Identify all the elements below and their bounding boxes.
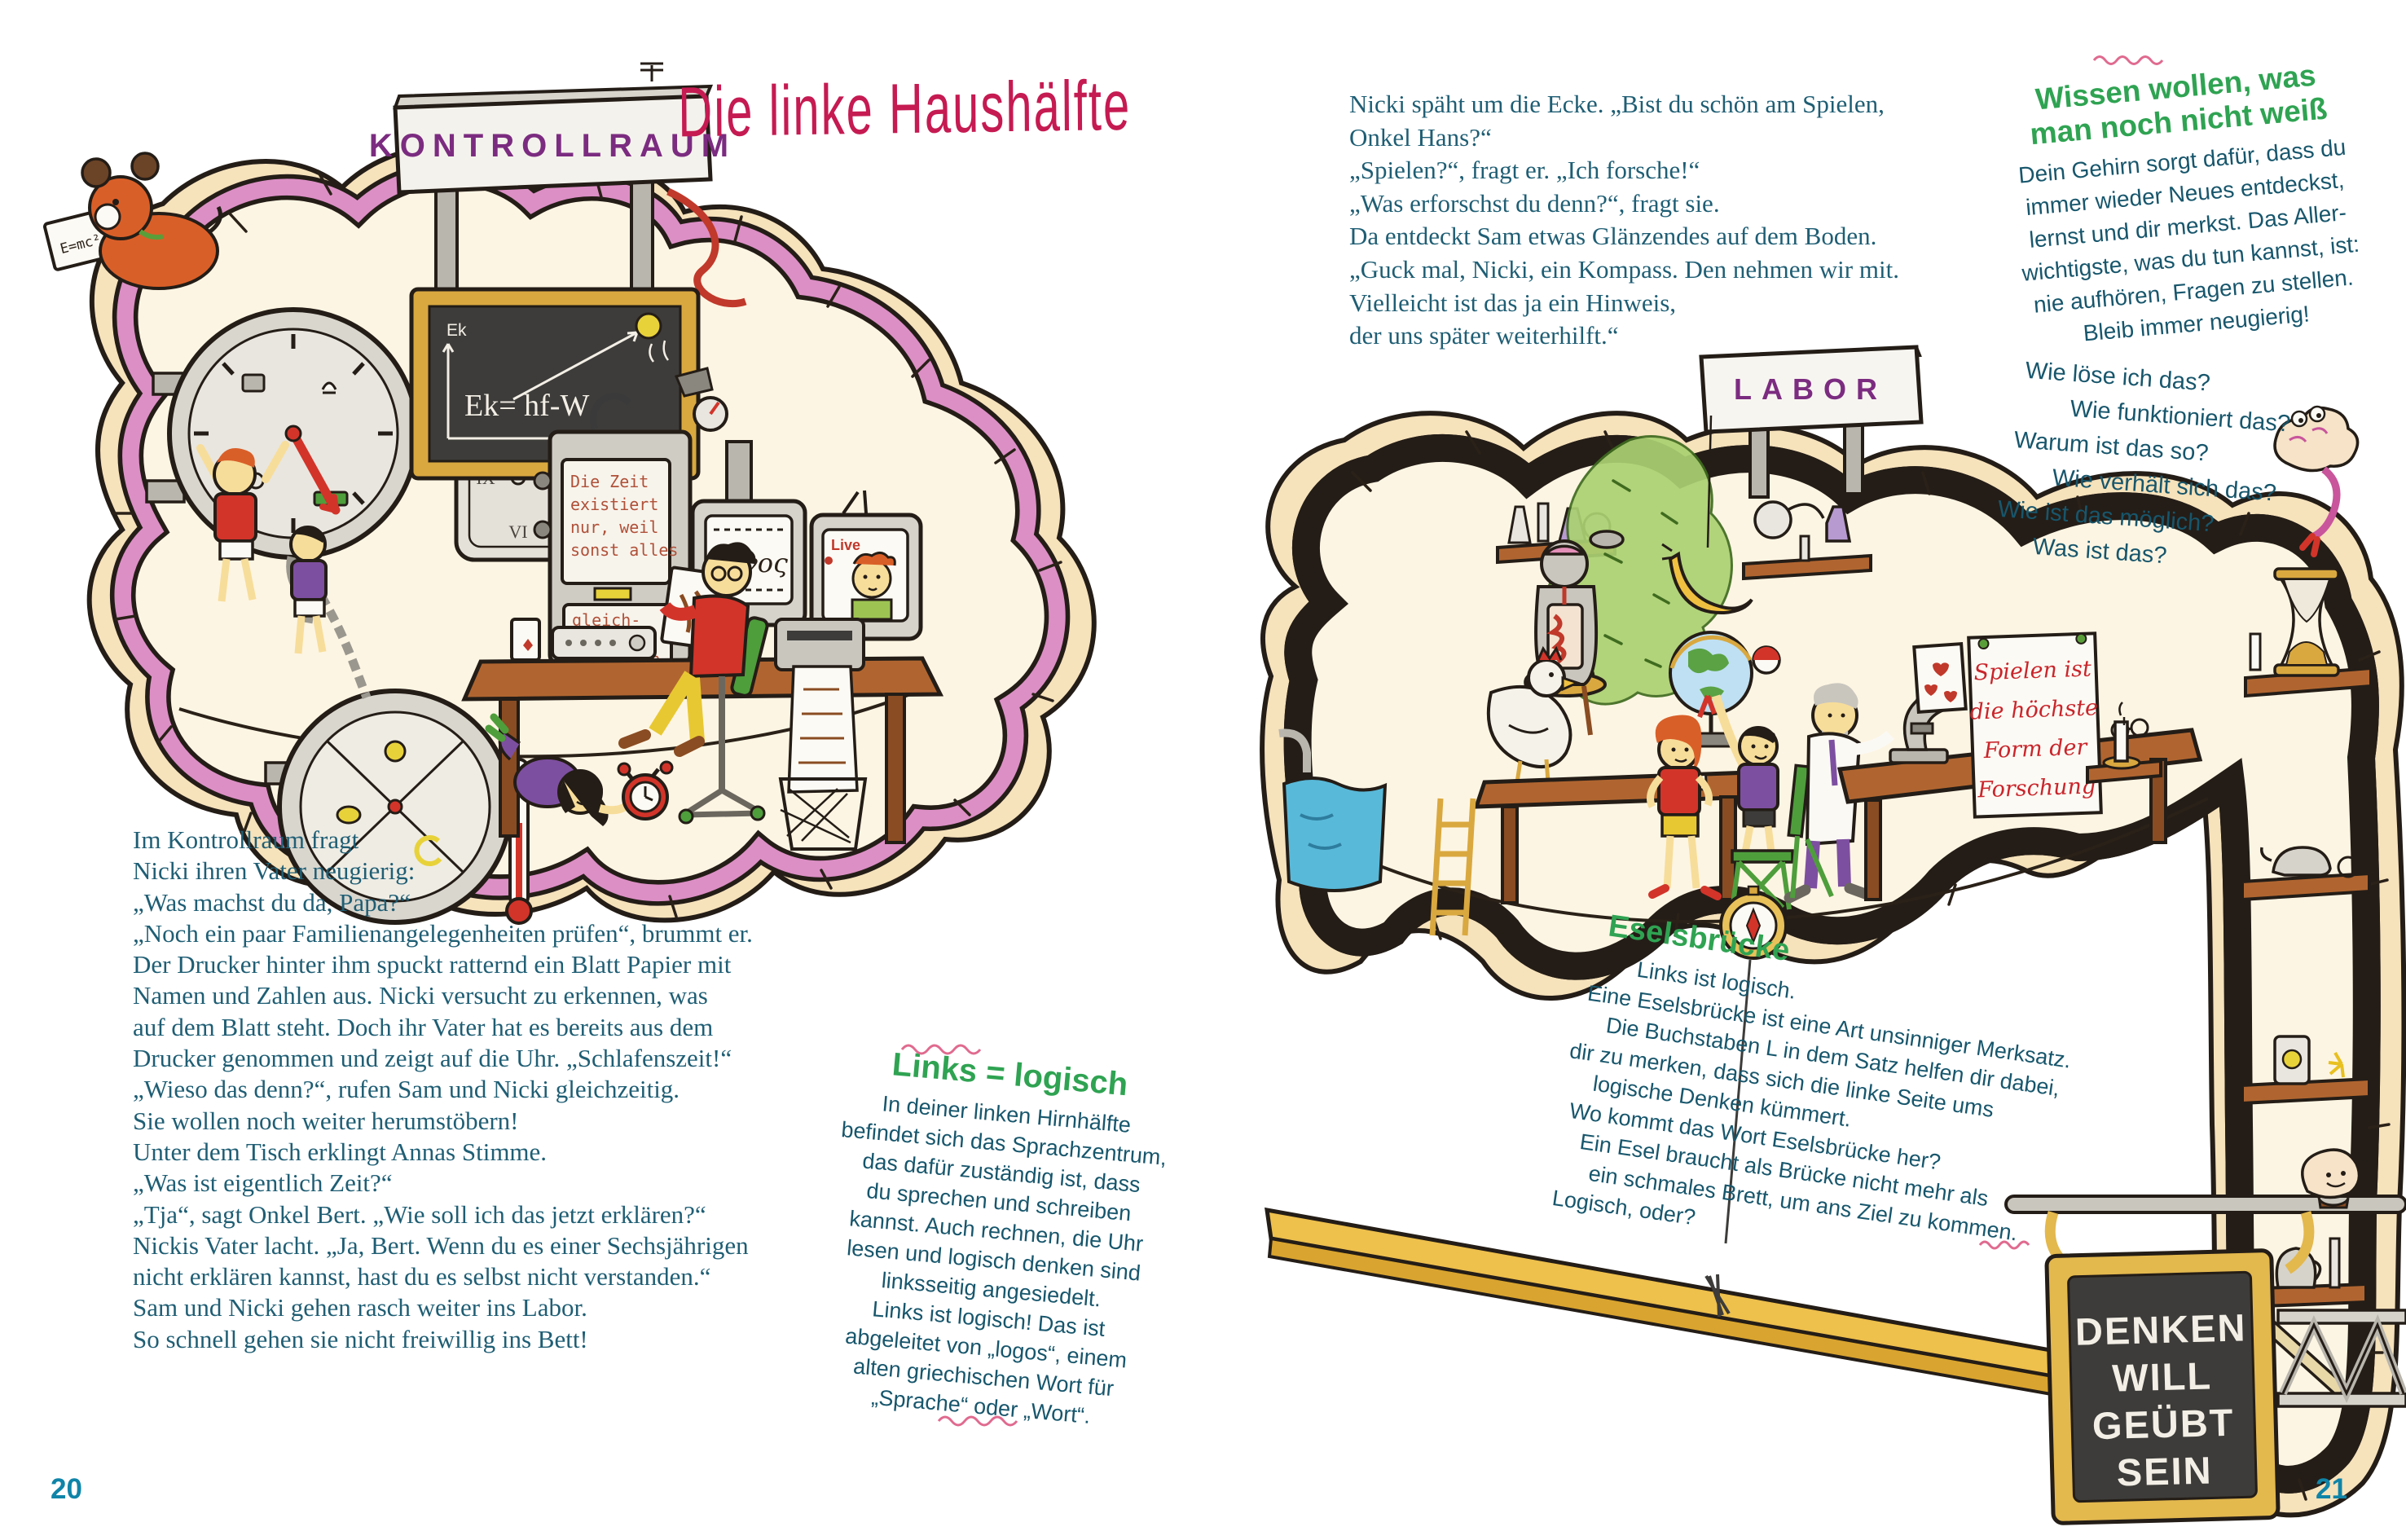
chalkboard-line: SEIN [2116, 1448, 2213, 1494]
machine-screen-line: existiert [570, 495, 658, 514]
story-line: Sam und Nicki gehen rasch weiter ins Lab… [133, 1292, 753, 1323]
story-line: Vielleicht ist das ja ein Hinweis, [1349, 287, 1899, 320]
formula-label: Ek= hf-W [464, 389, 589, 423]
story-line: „Was erforschst du denn?“, fragt sie. [1349, 187, 1899, 221]
story-line: Der Drucker hinter ihm spuckt ratternd e… [133, 949, 753, 980]
story-line: Namen und Zahlen aus. Nicki versucht zu … [133, 980, 753, 1011]
girl-red-shirt [1659, 768, 1700, 815]
infobox-wissen-wollen: Wissen wollen, was man noch nicht weiß D… [1975, 53, 2396, 357]
story-line: Onkel Hans?“ [1349, 121, 1899, 155]
father-shirt [691, 596, 748, 676]
yellow-shorts [1662, 815, 1698, 836]
questions-list: Wie löse ich das? Wie funktioniert das? … [2012, 354, 2294, 582]
story-line: „Was machst du da, Papa?“ [133, 887, 753, 918]
story-line: Im Kontrollraum fragt [133, 825, 753, 856]
squiggle-decoration [1978, 1237, 2035, 1253]
story-line: So schnell gehen sie nicht freiwillig in… [133, 1324, 753, 1355]
candle-icon [2250, 634, 2260, 670]
story-line: Drucker genommen und zeigt auf die Uhr. … [133, 1043, 753, 1074]
story-line: „Tja“, sagt Onkel Bert. „Wie soll ich da… [133, 1199, 753, 1230]
story-line: der uns später weiterhilft.“ [1349, 319, 1899, 353]
test-tube-icon [2330, 1239, 2339, 1287]
infobox-links-logisch: Links = logisch In deiner linken Hirnhäl… [785, 1040, 1206, 1438]
story-text-left: Im Kontrollraum fragt Nicki ihren Vater … [133, 825, 753, 1355]
story-line: Nicki ihren Vater neugierig: [133, 856, 753, 887]
dog-ear [132, 153, 158, 179]
lantern-icon [2275, 1036, 2309, 1084]
story-line: Sie wollen noch weiter herumstöbern! [133, 1106, 753, 1137]
lock-pictogram [243, 375, 264, 391]
pin-icon [2076, 634, 2086, 644]
dog-ear [82, 159, 110, 187]
story-line: „Guck mal, Nicki, ein Kompass. Den nehme… [1349, 253, 1899, 287]
machine-screen-line: nur, weil [570, 517, 658, 537]
story-text-right: Nicki späht um die Ecke. „Bist du schön … [1349, 88, 1899, 353]
page-number-left: 20 [51, 1473, 82, 1506]
story-line: nicht erklären kannst, hast du es selbst… [133, 1261, 753, 1292]
axis-label-ek: Ek [446, 321, 467, 340]
page-title: Die linke Haushälfte [678, 64, 1135, 153]
coffee-mug [512, 619, 539, 660]
story-line: „Spielen?“, fragt er. „Ich forsche!“ [1349, 154, 1899, 187]
printed-paper [789, 667, 857, 792]
story-line: Nickis Vater lacht. „Ja, Bert. Wenn du e… [133, 1230, 753, 1261]
chalkboard-line: GEÜBT [2092, 1401, 2235, 1448]
roman-numeral: VI [508, 521, 527, 542]
story-line: Unter dem Tisch erklingt Annas Stimme. [133, 1137, 753, 1168]
machine-screen-line: Die Zeit [570, 472, 649, 491]
story-line: auf dem Blatt steht. Doch ihr Vater hat … [133, 1012, 753, 1043]
lightbulb-icon [636, 314, 661, 338]
child-red-shirt [215, 494, 256, 541]
sign-post [1845, 419, 1863, 494]
skull-lid [1590, 531, 1623, 548]
boy-purple-shirt [1739, 764, 1778, 810]
green-stool [1732, 851, 1792, 862]
story-line: „Wieso das denn?“, rufen Sam und Nicki g… [133, 1074, 753, 1105]
child-purple-shirt [292, 561, 326, 600]
machine-screen-line: sonst alles [570, 540, 678, 560]
antenna-icon [640, 64, 663, 81]
tv-live-label: Live [831, 537, 860, 553]
story-line: „Noch ein paar Familienangelegenheiten p… [133, 918, 753, 949]
spielen-poster: Spielen ist die höchste Form der Forschu… [1968, 633, 2102, 816]
squiggle-decoration [900, 1040, 982, 1058]
story-line: „Was ist eigentlich Zeit?“ [133, 1168, 753, 1199]
tv-face [853, 560, 891, 597]
candle-icon [2115, 722, 2127, 761]
chalkboard-line: WILL [2112, 1353, 2213, 1399]
chalkboard-line: DENKEN [2074, 1305, 2247, 1353]
hearts-picture [1914, 644, 1965, 712]
squiggle-decoration [937, 1411, 1018, 1429]
poster-line: Forschung [1977, 773, 2096, 803]
dog-with-paper: E=mc² [44, 153, 220, 288]
poster-line: Spielen ist [1973, 656, 2092, 685]
dial-marker [385, 741, 405, 761]
page-number-right: 21 [2316, 1473, 2347, 1506]
book-spread: KONTROLLRAUM E=mc² [0, 0, 2406, 1540]
story-line: Da entdeckt Sam etwas Glänzendes auf dem… [1349, 220, 1899, 253]
poster-line: Form der [1982, 735, 2089, 764]
story-line: Nicki späht um die Ecke. „Bist du schön … [1349, 88, 1899, 121]
squiggle-decoration [2092, 51, 2166, 68]
poster-line: die höchste [1969, 695, 2098, 724]
sign-post [1750, 424, 1768, 497]
test-tube-icon [1538, 504, 1548, 541]
labor-sign-label: LABOR [1734, 372, 1887, 406]
pin-icon [1978, 639, 1988, 649]
